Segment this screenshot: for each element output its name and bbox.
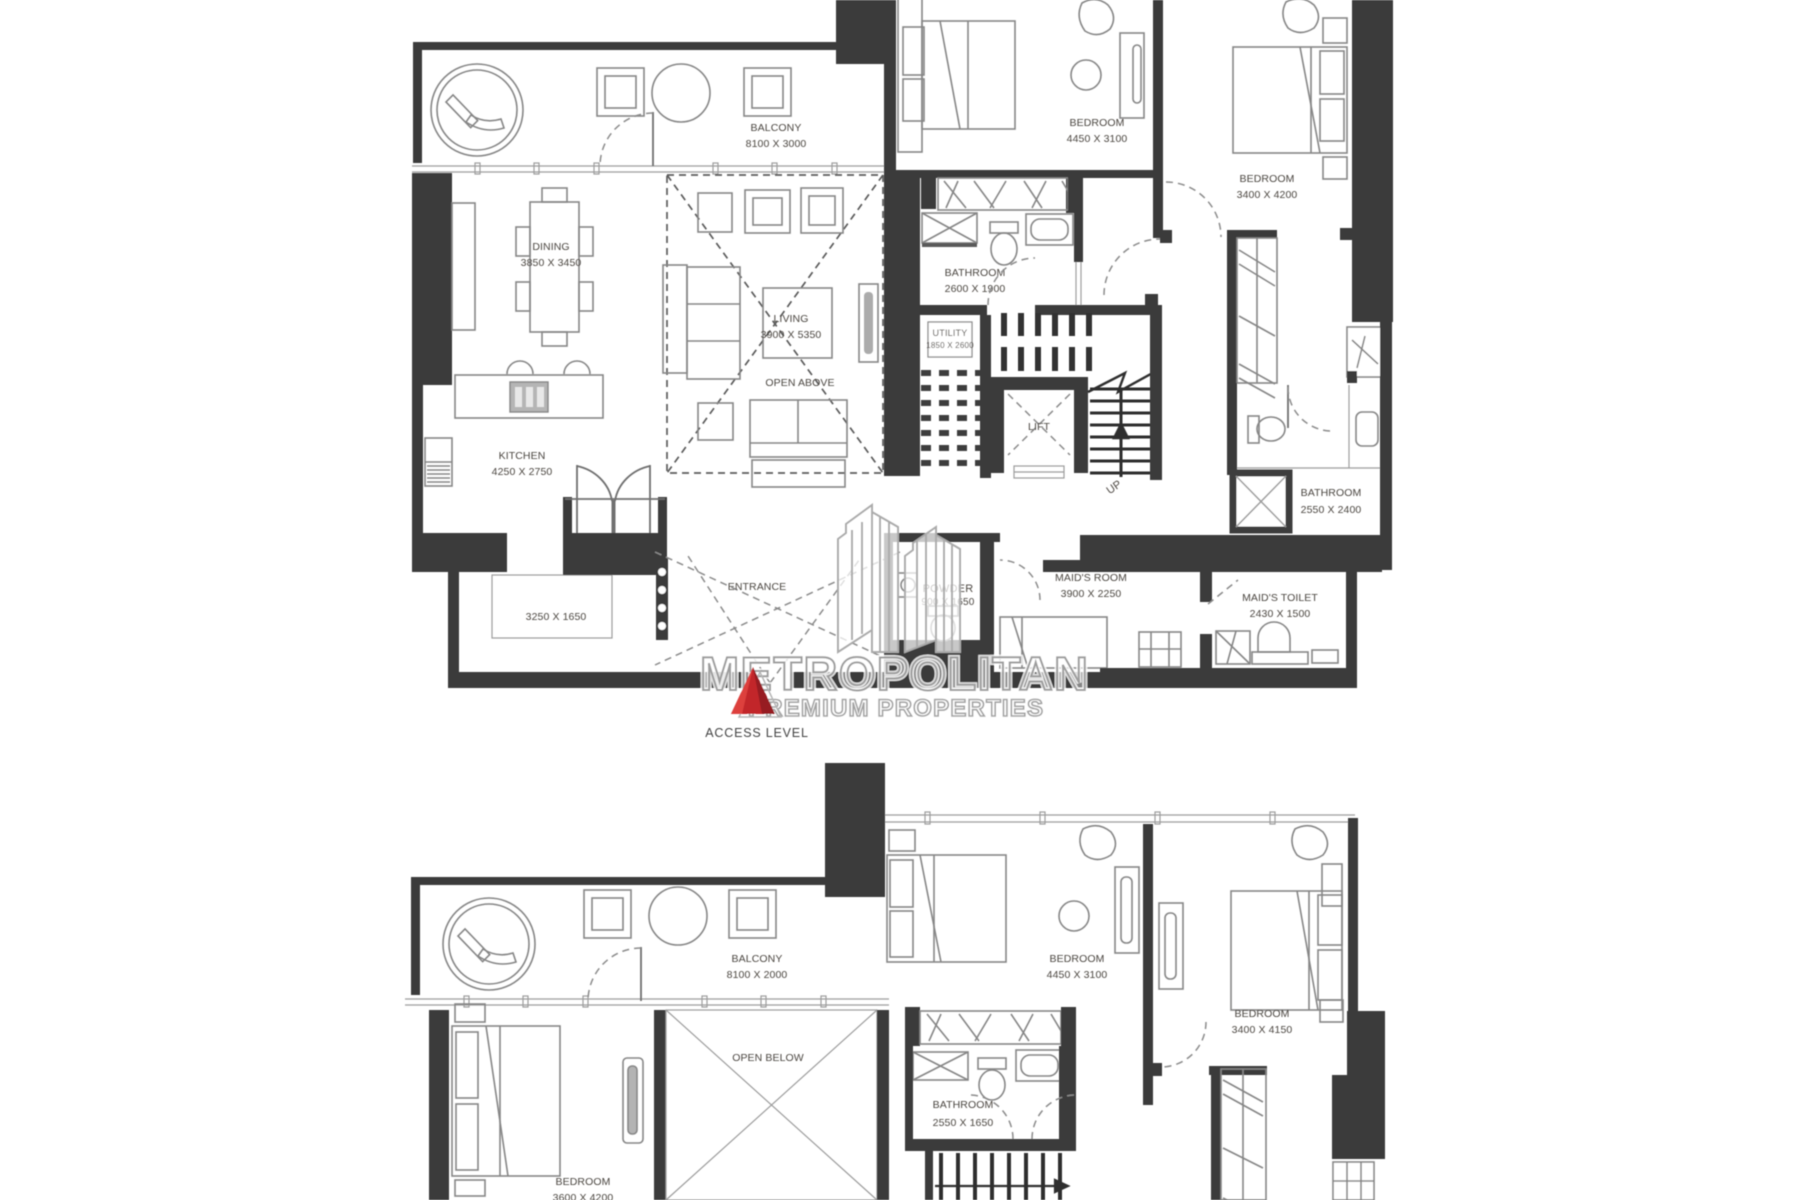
svg-text:BATHROOM: BATHROOM: [933, 1099, 994, 1111]
svg-text:LIVING: LIVING: [773, 313, 808, 325]
svg-text:PREMIUM PROPERTIES: PREMIUM PROPERTIES: [748, 695, 1048, 722]
svg-text:2550 X 1650: 2550 X 1650: [933, 1117, 994, 1129]
svg-text:3600 X 4200: 3600 X 4200: [553, 1192, 614, 1200]
svg-text:BEDROOM: BEDROOM: [1070, 117, 1125, 129]
svg-text:ACCESS LEVEL: ACCESS LEVEL: [705, 726, 808, 740]
svg-text:3400 X 4150: 3400 X 4150: [1232, 1024, 1293, 1036]
svg-text:3400 X 4200: 3400 X 4200: [1237, 189, 1298, 201]
svg-text:KITCHEN: KITCHEN: [499, 450, 546, 462]
svg-text:BEDROOM: BEDROOM: [1050, 953, 1105, 965]
svg-text:2550 X 2400: 2550 X 2400: [1301, 504, 1362, 516]
svg-text:1850 X 2600: 1850 X 2600: [926, 341, 974, 350]
svg-text:2430 X 1500: 2430 X 1500: [1250, 608, 1311, 620]
svg-text:BALCONY: BALCONY: [751, 122, 802, 134]
svg-text:BEDROOM: BEDROOM: [1235, 1008, 1290, 1020]
svg-text:BALCONY: BALCONY: [732, 953, 783, 965]
svg-text:4450 X 3100: 4450 X 3100: [1047, 969, 1108, 981]
svg-text:DINING: DINING: [532, 241, 569, 253]
svg-text:BEDROOM: BEDROOM: [1240, 173, 1295, 185]
svg-text:3850 X 3450: 3850 X 3450: [521, 257, 582, 269]
svg-text:BATHROOM: BATHROOM: [1301, 487, 1362, 499]
svg-text:UTILITY: UTILITY: [933, 328, 968, 338]
svg-text:3900 X 5350: 3900 X 5350: [761, 329, 822, 341]
svg-text:3250 X 1650: 3250 X 1650: [526, 611, 587, 623]
svg-text:ENTRANCE: ENTRANCE: [728, 581, 787, 593]
svg-text:BEDROOM: BEDROOM: [556, 1176, 611, 1188]
svg-text:MAID'S TOILET: MAID'S TOILET: [1242, 592, 1318, 604]
svg-text:4250 X 2750: 4250 X 2750: [492, 466, 553, 478]
svg-text:4450 X 3100: 4450 X 3100: [1067, 133, 1128, 145]
svg-text:OPEN BELOW: OPEN BELOW: [732, 1052, 804, 1064]
svg-text:OPEN ABOVE: OPEN ABOVE: [765, 377, 834, 389]
svg-text:3900 X 2250: 3900 X 2250: [1061, 588, 1122, 600]
svg-text:8100 X 2000: 8100 X 2000: [727, 969, 788, 981]
svg-text:8100 X 3000: 8100 X 3000: [746, 138, 807, 150]
svg-text:2600 X 1900: 2600 X 1900: [945, 283, 1006, 295]
svg-text:LIFT: LIFT: [1028, 421, 1050, 433]
svg-text:MAID'S ROOM: MAID'S ROOM: [1055, 572, 1127, 584]
